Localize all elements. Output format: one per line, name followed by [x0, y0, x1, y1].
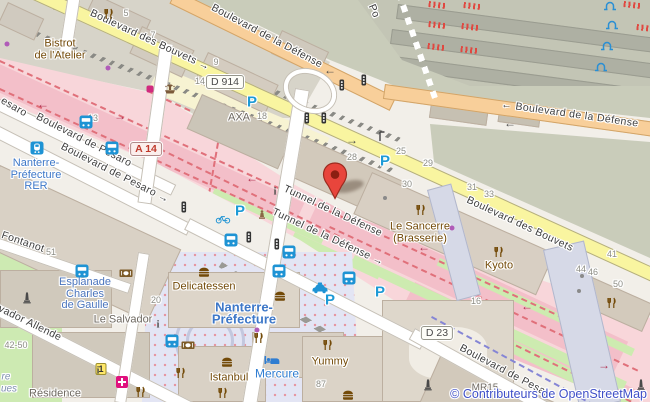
route-badge: D 23	[421, 326, 453, 340]
house-number: 33	[484, 189, 494, 199]
house-number: 7	[150, 30, 155, 40]
place-label: Résidence	[29, 388, 81, 400]
mast-icon	[379, 131, 385, 141]
oneway-arrow-icon: →	[346, 133, 358, 147]
memorial-icon: i	[97, 366, 100, 377]
train-cars	[427, 43, 445, 51]
poi-dot-icon	[580, 274, 584, 278]
poi-dot-icon	[577, 289, 581, 293]
monument-icon	[424, 379, 433, 391]
bicycle-parking-icon	[216, 214, 231, 224]
restaurant-icon	[102, 8, 114, 20]
place-label-line: Delicatessen	[173, 281, 236, 293]
place-label-line: Le Sancerre	[390, 222, 450, 234]
station-entrance-icon	[604, 0, 617, 11]
house-number: 87	[316, 379, 326, 389]
restaurant-icon	[252, 332, 264, 344]
shop-dot-icon	[106, 66, 111, 71]
house-number: 51	[46, 247, 56, 257]
station-entrance-icon	[606, 19, 619, 30]
bus-stop-icon	[273, 265, 286, 278]
house-number: 25	[396, 146, 406, 156]
bus-stop-icon	[106, 142, 119, 155]
bank-icon	[119, 268, 133, 278]
place-label-line: AXA	[228, 112, 250, 124]
shop-dot-icon	[147, 86, 154, 93]
oneway-arrow-icon: →	[114, 109, 126, 123]
place-label: Istanbul	[210, 372, 249, 384]
hotel-bed-icon	[265, 355, 280, 365]
parking-icon: P	[247, 94, 257, 111]
parking-icon: P	[380, 153, 390, 170]
statue-icon	[258, 210, 266, 220]
restaurant-icon	[414, 204, 426, 216]
oneway-arrow-icon: ←	[246, 171, 258, 185]
place-label: Kyoto	[485, 260, 513, 272]
house-number: 20	[151, 295, 161, 305]
parking-icon: P	[325, 292, 335, 309]
place-label: EsplanadeCharlesde Gaulle	[59, 277, 111, 312]
train-cars	[428, 21, 446, 29]
monument-icon	[23, 292, 32, 304]
house-number: 30	[402, 179, 412, 189]
poi-dot-icon	[383, 196, 387, 200]
train-cars	[461, 23, 479, 31]
fast-food-icon	[198, 267, 211, 278]
place-label: Mercure	[255, 368, 299, 380]
station-entrance-icon	[595, 61, 608, 72]
oneway-arrow-icon: ←	[521, 299, 533, 313]
house-number: 9	[213, 57, 218, 67]
shop-dot-icon	[450, 226, 455, 231]
house-number: 42-50	[4, 340, 27, 350]
oneway-arrow-icon: →	[598, 358, 610, 372]
memorial-icon: i	[274, 187, 277, 198]
place-label: Yummy	[312, 356, 349, 368]
place-label: Le Salvador	[94, 314, 153, 326]
house-number: 29	[423, 158, 433, 168]
place-label: Delicatessen	[173, 281, 236, 293]
restaurant-icon	[605, 297, 617, 309]
bus-stop-icon	[283, 246, 296, 259]
house-number: 41	[607, 249, 617, 259]
restaurant-icon	[174, 367, 186, 379]
oneway-arrow-icon: ←	[37, 97, 49, 111]
oneway-arrow-icon: ←	[504, 116, 516, 130]
place-label: Bistrotde l'Atelier	[34, 39, 85, 62]
rer-station-icon	[31, 142, 44, 155]
bus-stop-icon	[76, 265, 89, 278]
shop-dot-icon	[5, 42, 10, 47]
attribution[interactable]: © Contributeurs de OpenStreetMap	[450, 387, 647, 401]
house-number: 50	[613, 279, 623, 289]
route-badge: D 914	[206, 75, 244, 89]
fast-food-icon	[221, 357, 234, 368]
traffic-light-icon	[247, 232, 252, 243]
place-label: Nanterre-Préfecture	[212, 302, 276, 325]
traffic-light-icon	[340, 80, 345, 91]
bus-stop-icon	[166, 335, 179, 348]
restaurant-icon	[321, 339, 333, 351]
place-label-line: Yummy	[312, 356, 349, 368]
memorial-icon: i	[157, 320, 160, 331]
restaurant-icon	[134, 386, 146, 398]
house-number: 31	[467, 182, 477, 192]
house-number: 44	[576, 264, 586, 274]
train-cars	[636, 24, 650, 32]
train-cars	[463, 2, 481, 10]
place-label-line: Résidence	[29, 388, 81, 400]
place-label-line: Kyoto	[485, 260, 513, 272]
place-label: AXA	[228, 112, 250, 124]
fast-food-icon	[274, 291, 287, 302]
place-label-line: RER	[11, 181, 62, 193]
house-number: 28	[347, 152, 357, 162]
house-number: 46	[588, 267, 598, 277]
bank-icon	[181, 340, 195, 350]
traffic-light-icon	[305, 113, 310, 124]
location-marker[interactable]	[322, 162, 348, 200]
pharmacy-icon	[116, 376, 128, 388]
parking-icon: P	[375, 284, 385, 301]
place-label-line: Esplanade	[59, 277, 111, 289]
fountain-icon	[164, 84, 177, 95]
route-badge: A 14	[130, 142, 162, 156]
place-label: Nanterre-PréfectureRER	[11, 158, 62, 193]
place-label-line: Nanterre-	[11, 158, 62, 170]
place-label-line: ues	[1, 383, 17, 395]
restaurant-icon	[216, 387, 228, 399]
shop-dot-icon	[255, 328, 260, 333]
place-label-line: Le Salvador	[94, 314, 153, 326]
place-label-line: Préfecture	[212, 313, 276, 325]
bus-stop-icon	[225, 234, 238, 247]
fast-food-icon	[342, 390, 355, 401]
bus-stop-icon	[80, 116, 93, 129]
oneway-arrow-icon: ←	[324, 63, 336, 77]
place-label-line: de l'Atelier	[34, 50, 85, 62]
house-number: 5	[123, 8, 128, 18]
map-canvas[interactable]: Boulevard des Bouvets →Boulevard des Bou…	[0, 0, 650, 402]
place-label-line: Istanbul	[210, 372, 249, 384]
train-cars	[623, 1, 641, 9]
place-label-line: de Gaulle	[59, 300, 111, 312]
place-label-line: Bistrot	[34, 39, 85, 51]
traffic-light-icon	[362, 75, 367, 86]
place-label-line: Mercure	[255, 368, 299, 380]
house-number: 16	[471, 296, 481, 306]
traffic-light-icon	[275, 239, 280, 250]
place-label: ues	[1, 383, 17, 395]
traffic-light-icon	[322, 113, 327, 124]
place-label-line: re	[2, 371, 11, 383]
bus-stop-icon	[343, 272, 356, 285]
house-number: 14	[195, 76, 205, 86]
station-entrance-icon	[601, 40, 614, 51]
traffic-light-icon	[182, 202, 187, 213]
oneway-arrow-icon: ←	[418, 240, 430, 254]
place-label: re	[2, 371, 11, 383]
restaurant-icon	[492, 246, 504, 258]
house-number: 18	[257, 111, 267, 121]
parking-icon: P	[235, 203, 245, 220]
